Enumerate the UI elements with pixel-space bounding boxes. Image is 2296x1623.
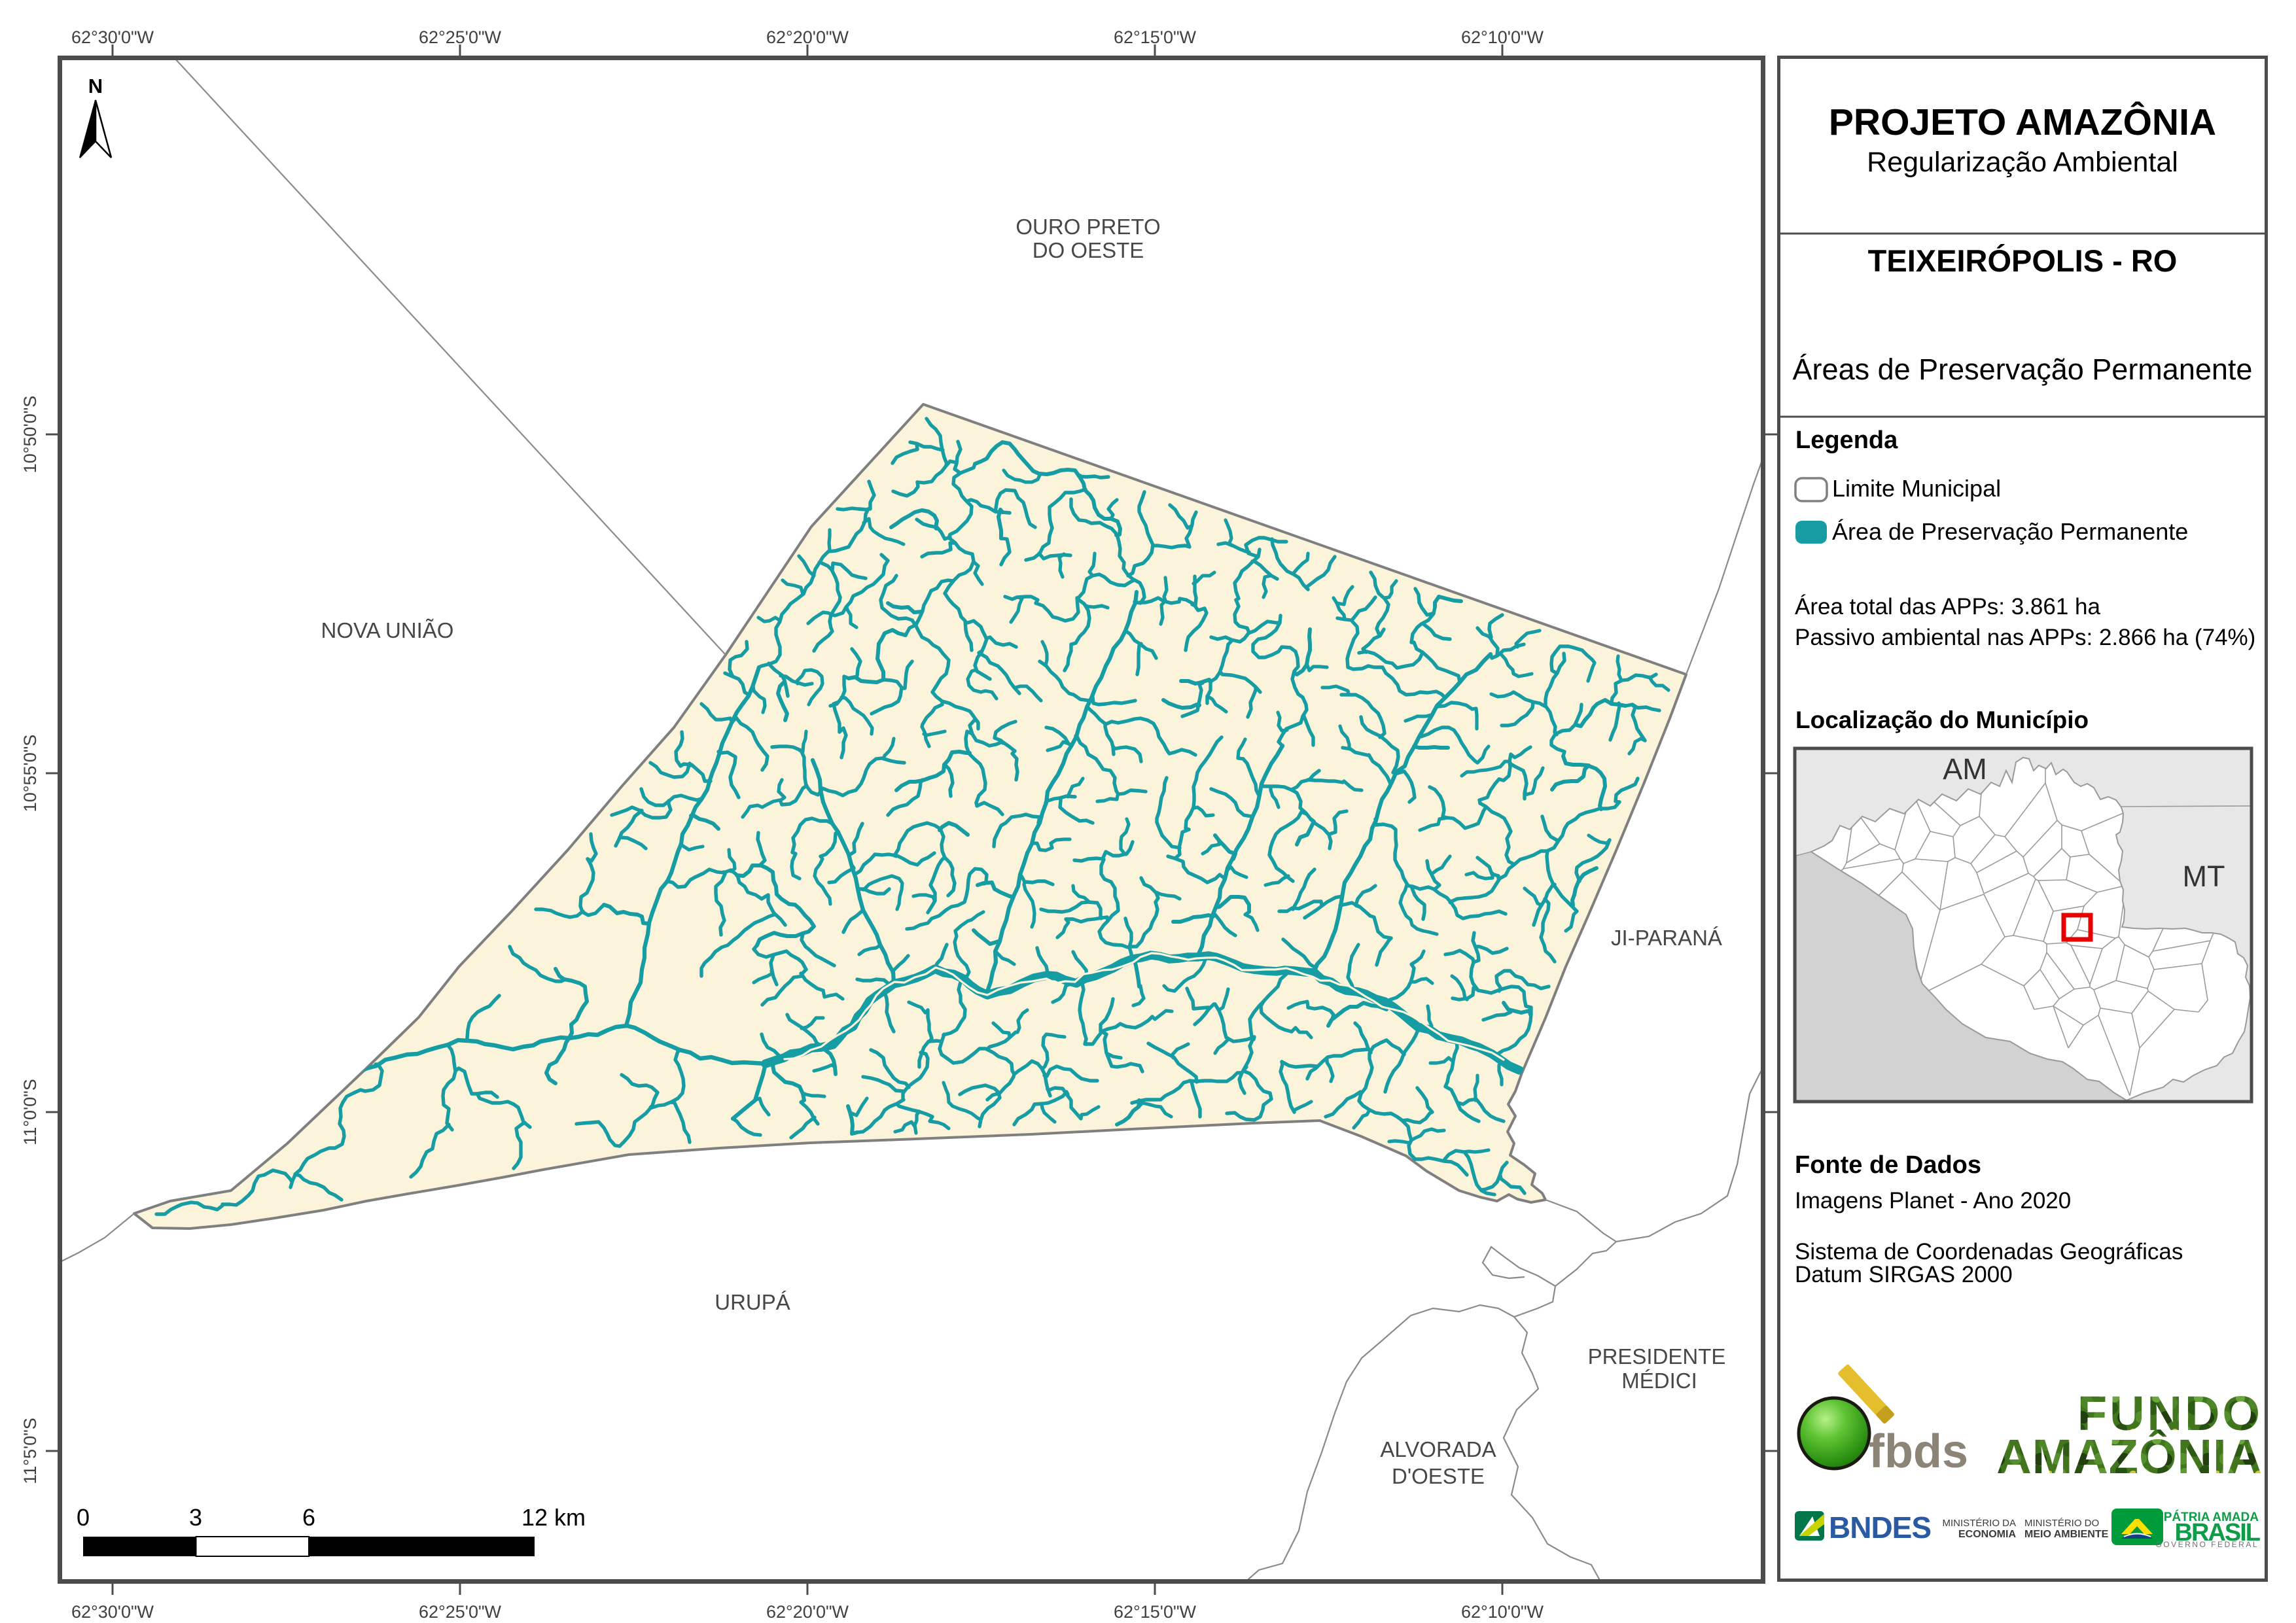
svg-text:GOVERNO FEDERAL: GOVERNO FEDERAL: [2155, 1540, 2259, 1549]
svg-text:PROJETO AMAZÔNIA: PROJETO AMAZÔNIA: [1829, 101, 2216, 143]
svg-text:Área de Preservação Permanente: Área de Preservação Permanente: [1832, 518, 2188, 545]
svg-text:62°25'0"W: 62°25'0"W: [419, 1602, 502, 1622]
svg-text:62°10'0"W: 62°10'0"W: [1461, 1602, 1544, 1622]
svg-text:Datum SIRGAS 2000: Datum SIRGAS 2000: [1795, 1262, 2013, 1287]
svg-text:62°15'0"W: 62°15'0"W: [1114, 27, 1197, 47]
svg-text:62°10'0"W: 62°10'0"W: [1461, 27, 1544, 47]
svg-text:NOVA UNIÃO: NOVA UNIÃO: [321, 618, 454, 642]
svg-text:MINISTÉRIO DA: MINISTÉRIO DA: [1942, 1518, 2016, 1529]
svg-text:ECONOMIA: ECONOMIA: [1958, 1529, 2016, 1540]
svg-text:Fonte de Dados: Fonte de Dados: [1795, 1151, 1981, 1179]
svg-text:fbds: fbds: [1869, 1425, 1968, 1478]
svg-text:TEIXEIRÓPOLIS - RO: TEIXEIRÓPOLIS - RO: [1868, 243, 2178, 278]
svg-text:62°20'0"W: 62°20'0"W: [766, 1602, 849, 1622]
svg-text:Regularização Ambiental: Regularização Ambiental: [1867, 147, 2178, 178]
svg-text:PRESIDENTE: PRESIDENTE: [1588, 1344, 1726, 1369]
svg-text:JI-PARANÁ: JI-PARANÁ: [1611, 926, 1722, 950]
svg-text:ALVORADA: ALVORADA: [1380, 1437, 1496, 1461]
svg-text:Localização do Município: Localização do Município: [1795, 707, 2089, 733]
svg-text:AM: AM: [1943, 752, 1987, 786]
svg-text:URUPÁ: URUPÁ: [715, 1290, 790, 1314]
svg-text:0: 0: [77, 1504, 90, 1531]
svg-text:62°15'0"W: 62°15'0"W: [1114, 1602, 1197, 1622]
svg-text:10°55'0"S: 10°55'0"S: [20, 735, 40, 812]
svg-text:DO OESTE: DO OESTE: [1033, 238, 1144, 262]
svg-text:D'OESTE: D'OESTE: [1392, 1464, 1485, 1488]
svg-text:MÉDICI: MÉDICI: [1621, 1369, 1697, 1393]
svg-text:AMAZÔNIA: AMAZÔNIA: [1996, 1429, 2263, 1484]
svg-text:OURO PRETO: OURO PRETO: [1016, 215, 1160, 239]
svg-text:Limite Municipal: Limite Municipal: [1832, 475, 2001, 502]
svg-text:12 km: 12 km: [521, 1504, 586, 1531]
svg-text:Legenda: Legenda: [1795, 427, 1898, 454]
svg-text:10°50'0"S: 10°50'0"S: [20, 396, 40, 474]
svg-text:62°20'0"W: 62°20'0"W: [766, 27, 849, 47]
svg-text:62°30'0"W: 62°30'0"W: [71, 27, 154, 47]
svg-text:62°30'0"W: 62°30'0"W: [71, 1602, 154, 1622]
svg-text:MT: MT: [2183, 860, 2225, 893]
svg-text:Sistema de Coordenadas Geográf: Sistema de Coordenadas Geográficas: [1795, 1239, 2183, 1265]
svg-text:Imagens Planet - Ano 2020: Imagens Planet - Ano 2020: [1795, 1188, 2071, 1213]
svg-text:62°25'0"W: 62°25'0"W: [419, 27, 502, 47]
svg-text:MINISTÉRIO DO: MINISTÉRIO DO: [2024, 1518, 2099, 1529]
svg-text:BNDES: BNDES: [1829, 1510, 1931, 1544]
svg-text:Área total das APPs: 3.861 ha: Área total das APPs: 3.861 ha: [1795, 594, 2101, 620]
svg-text:Passivo ambiental nas APPs: 2.: Passivo ambiental nas APPs: 2.866 ha (74…: [1795, 625, 2255, 650]
svg-text:6: 6: [302, 1504, 315, 1531]
svg-text:N: N: [88, 75, 103, 97]
svg-text:3: 3: [189, 1504, 202, 1531]
svg-text:Áreas de Preservação Permanent: Áreas de Preservação Permanente: [1793, 353, 2253, 386]
svg-text:11°0'0"S: 11°0'0"S: [20, 1079, 40, 1145]
svg-text:11°5'0"S: 11°5'0"S: [20, 1418, 40, 1484]
svg-text:MEIO AMBIENTE: MEIO AMBIENTE: [2024, 1529, 2109, 1540]
